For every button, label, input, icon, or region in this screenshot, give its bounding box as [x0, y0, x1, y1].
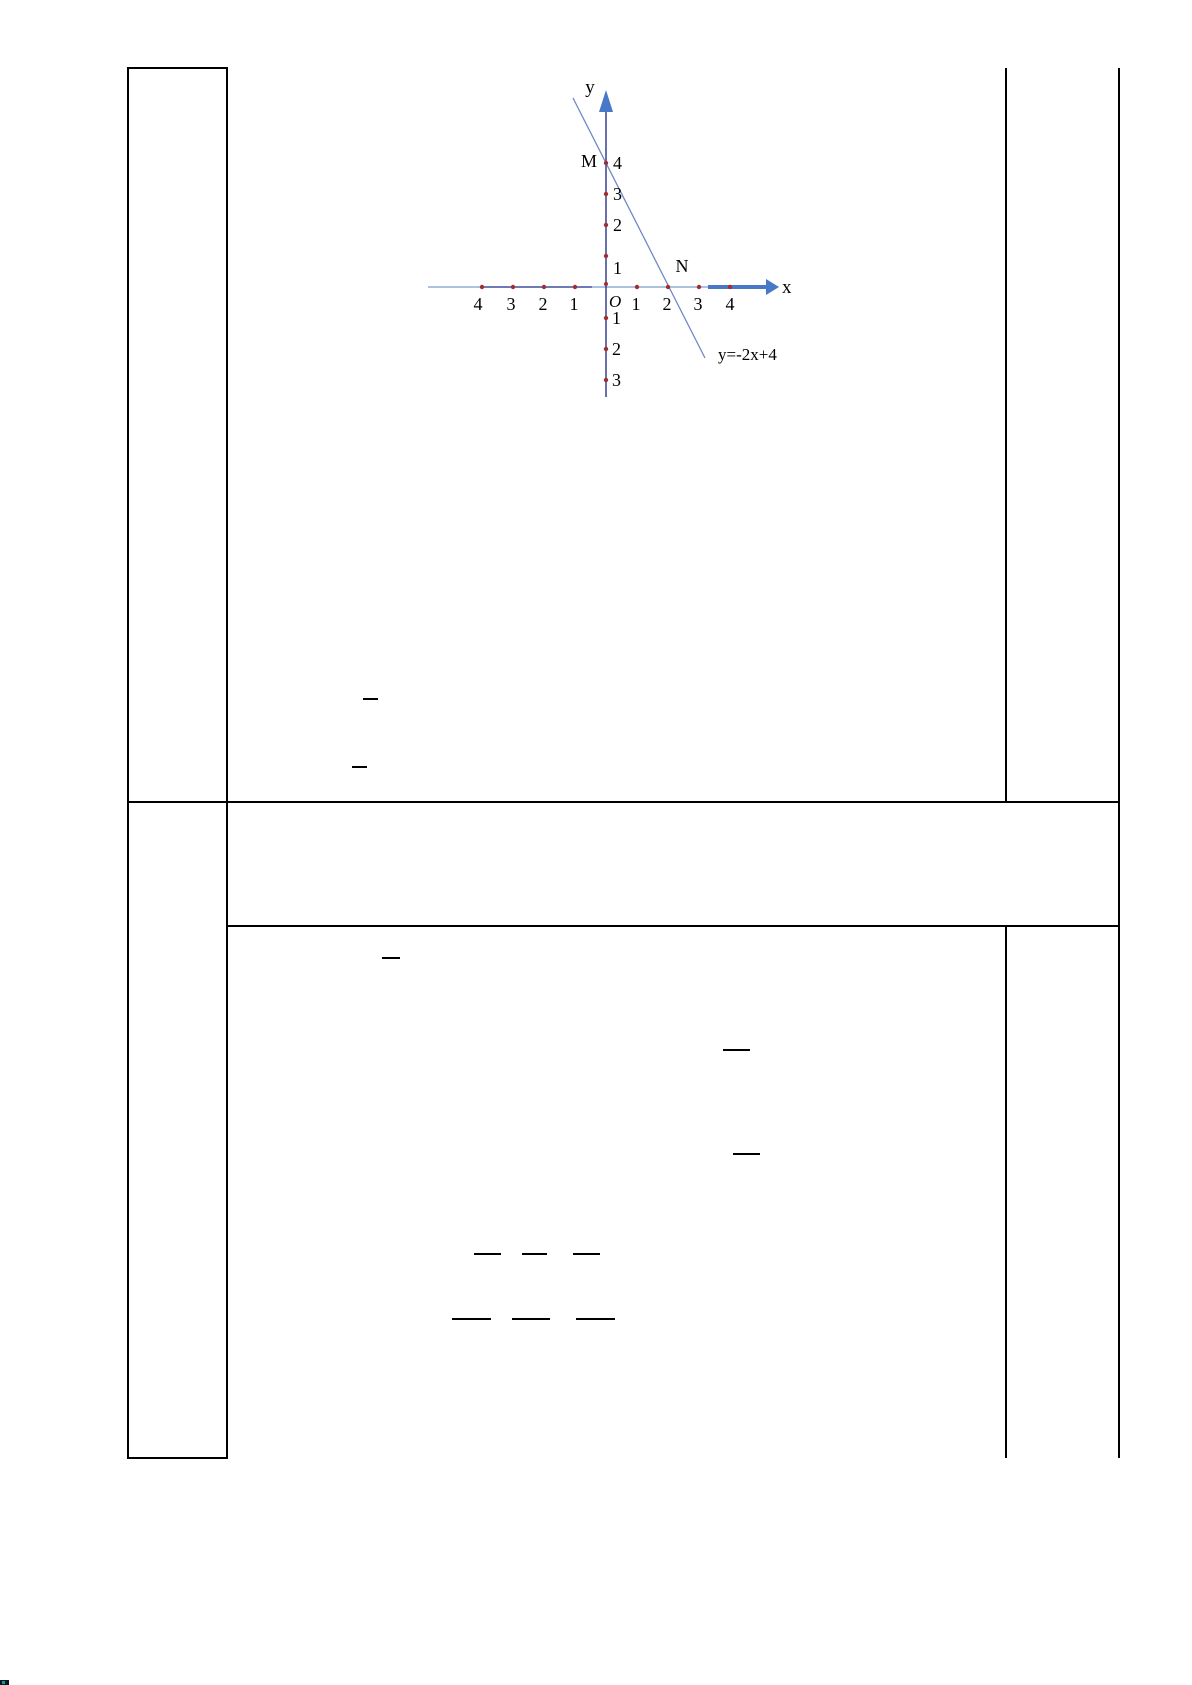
document-page: y x O 4 3 2 1 1 2 3 4 4 3 2 1 1 2 3 M N …	[0, 0, 1192, 1685]
table-border-col3-lower	[1005, 926, 1007, 1458]
svg-text:3: 3	[612, 370, 621, 390]
coordinate-graph: y x O 4 3 2 1 1 2 3 4 4 3 2 1 1 2 3 M N …	[400, 60, 800, 405]
x-axis-arrowhead-icon	[766, 279, 779, 295]
table-row-divider-1	[127, 801, 1120, 803]
svg-text:1: 1	[612, 308, 621, 328]
svg-text:1: 1	[632, 294, 641, 314]
answer-blank-7c	[576, 1318, 615, 1320]
table-border-col2	[226, 68, 228, 1458]
answer-blank-7a	[452, 1318, 491, 1320]
svg-text:3: 3	[694, 294, 703, 314]
table-border-bottom-leftcell	[127, 1457, 228, 1459]
svg-text:2: 2	[663, 294, 672, 314]
svg-text:4: 4	[726, 294, 735, 314]
answer-blank-1	[363, 698, 378, 700]
svg-text:2: 2	[613, 215, 622, 235]
answer-blank-7b	[512, 1318, 550, 1320]
answer-blank-4	[723, 1049, 750, 1051]
y-axis-arrowhead-icon	[599, 90, 613, 112]
corner-artifact-teal-pixel	[2, 1681, 5, 1684]
y-axis-label: y	[585, 77, 595, 98]
svg-text:1: 1	[613, 258, 622, 278]
table-border-col3-upper	[1005, 68, 1007, 802]
answer-blank-6a	[474, 1253, 501, 1255]
svg-text:3: 3	[507, 294, 516, 314]
page-corner-artifact	[0, 1680, 9, 1685]
line-equation-label: y=-2x+4	[718, 345, 777, 364]
table-border-left	[127, 68, 129, 1458]
function-line	[573, 98, 705, 358]
answer-blank-5	[733, 1153, 760, 1155]
y-tick-labels: 4 3 2 1 1 2 3	[612, 153, 622, 390]
svg-text:3: 3	[613, 184, 622, 204]
point-label-M: M	[581, 151, 597, 171]
svg-text:4: 4	[474, 294, 483, 314]
answer-blank-6c	[573, 1253, 600, 1255]
answer-blank-6b	[522, 1253, 547, 1255]
x-axis-label: x	[782, 277, 792, 298]
table-border-right	[1118, 68, 1120, 1458]
table-border-top-leftcell	[127, 67, 228, 69]
answer-blank-2	[352, 766, 367, 768]
x-tick-labels: 4 3 2 1 1 2 3 4	[474, 294, 735, 314]
svg-text:1: 1	[570, 294, 579, 314]
svg-text:2: 2	[612, 339, 621, 359]
answer-blank-3	[382, 957, 400, 959]
point-label-N: N	[676, 256, 689, 276]
table-row-divider-2	[226, 925, 1120, 927]
svg-text:2: 2	[539, 294, 548, 314]
svg-text:4: 4	[613, 153, 622, 173]
